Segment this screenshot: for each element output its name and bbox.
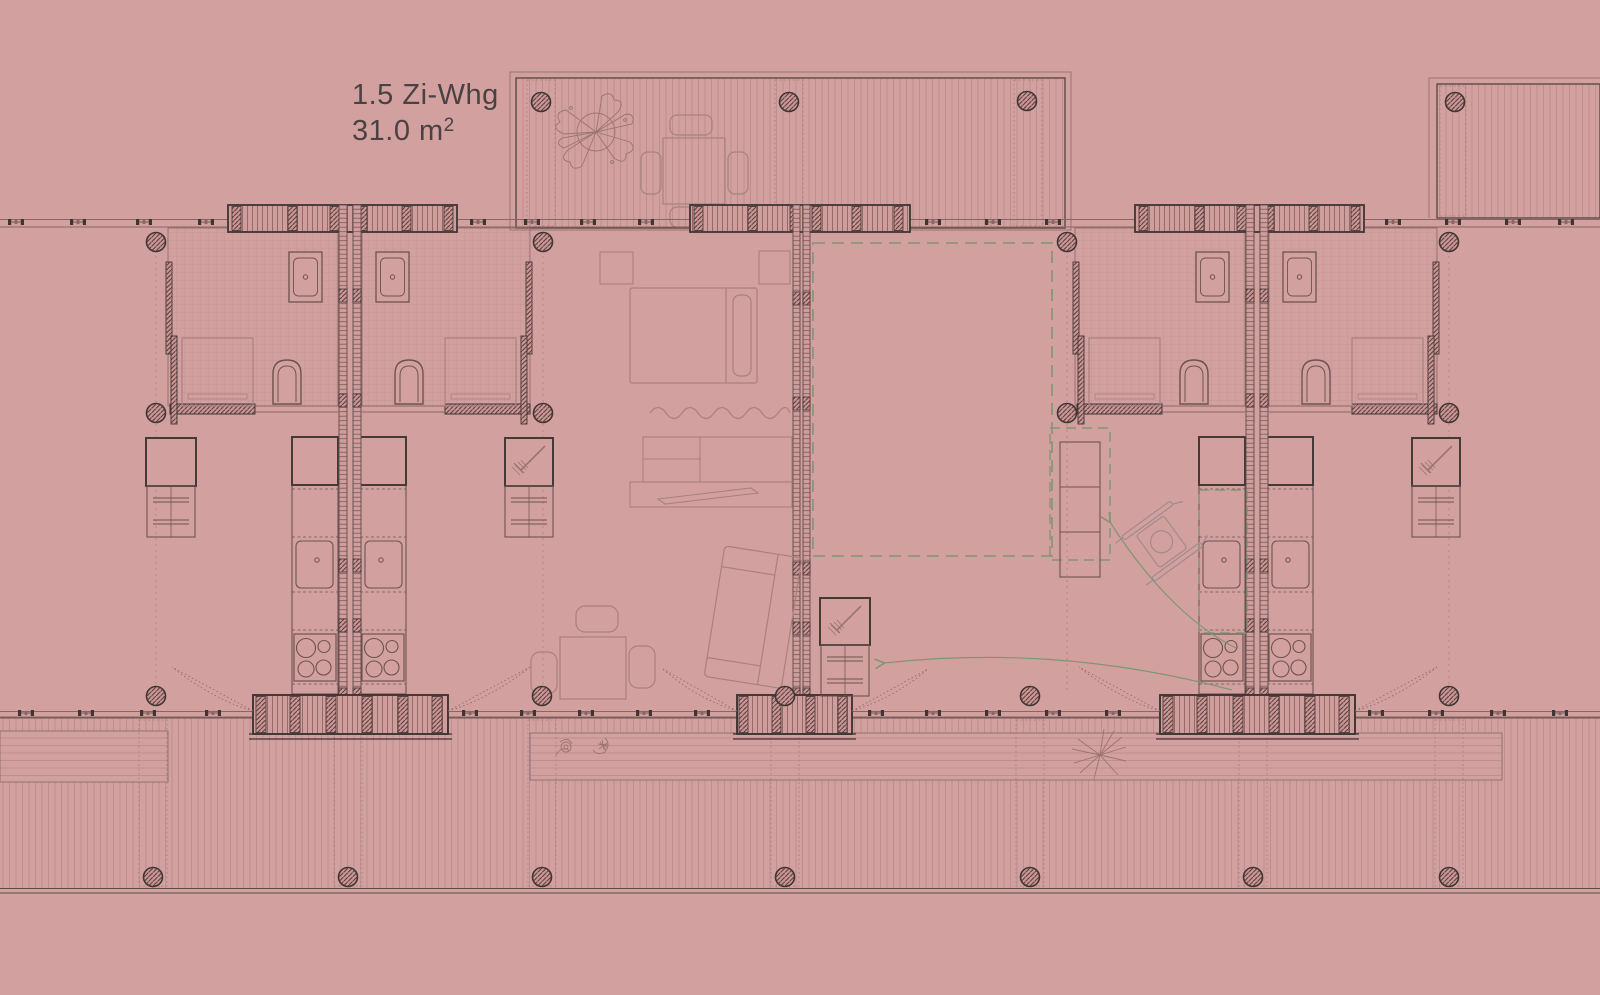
column-icon bbox=[534, 404, 553, 423]
column-icon bbox=[534, 233, 553, 252]
column-icon bbox=[1440, 233, 1459, 252]
column-icon bbox=[147, 687, 166, 706]
column-icon bbox=[1058, 404, 1077, 423]
column-icon bbox=[776, 868, 795, 887]
column-icon bbox=[533, 868, 552, 887]
column-icon bbox=[1058, 233, 1077, 252]
column-icon bbox=[533, 687, 552, 706]
column-icon bbox=[1440, 687, 1459, 706]
floor-plan-page: 1.5 Zi-Whg 31.0 m2 bbox=[0, 0, 1600, 995]
apartment-area-label: 31.0 m2 bbox=[352, 115, 455, 147]
column-icon bbox=[144, 868, 163, 887]
column-icon bbox=[1018, 92, 1037, 111]
column-icon bbox=[780, 93, 799, 112]
bottom-deck bbox=[0, 718, 1600, 893]
entry-porch bbox=[733, 695, 856, 739]
column-icon bbox=[1021, 687, 1040, 706]
column-icon bbox=[1440, 868, 1459, 887]
column-icon bbox=[532, 93, 551, 112]
apartment-type-label: 1.5 Zi-Whg bbox=[352, 79, 499, 111]
column-icon bbox=[147, 404, 166, 423]
column-icon bbox=[339, 868, 358, 887]
column-icon bbox=[1446, 93, 1465, 112]
column-icon bbox=[1440, 404, 1459, 423]
column-icon bbox=[147, 233, 166, 252]
column-icon bbox=[1244, 868, 1263, 887]
column-icon bbox=[1021, 868, 1040, 887]
floor-plan-svg: 1.5 Zi-Whg 31.0 m2 bbox=[0, 0, 1600, 995]
column-icon bbox=[776, 687, 795, 706]
